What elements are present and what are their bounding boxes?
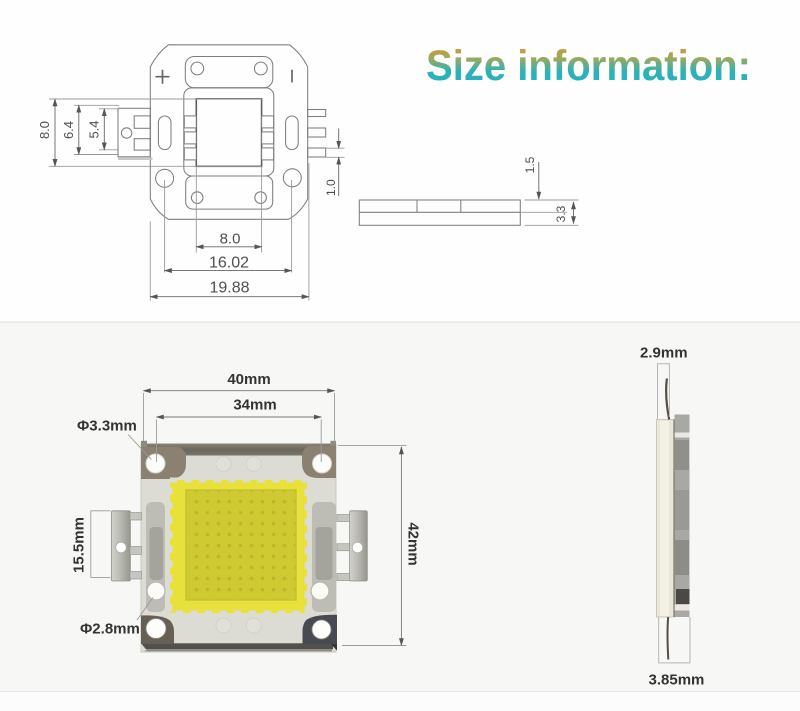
svg-text:1.5: 1.5 bbox=[523, 156, 537, 173]
svg-text:Φ2.8mm: Φ2.8mm bbox=[80, 621, 140, 638]
svg-text:6.4: 6.4 bbox=[61, 121, 76, 139]
svg-text:40mm: 40mm bbox=[227, 371, 270, 388]
svg-text:Size information:: Size information: bbox=[426, 42, 751, 90]
svg-text:5.4: 5.4 bbox=[86, 120, 101, 138]
svg-text:3.3: 3.3 bbox=[554, 205, 568, 222]
svg-text:34mm: 34mm bbox=[233, 397, 276, 414]
svg-text:3.85mm: 3.85mm bbox=[649, 672, 705, 689]
svg-text:15.5mm: 15.5mm bbox=[70, 517, 87, 573]
svg-text:42mm: 42mm bbox=[405, 522, 422, 565]
svg-text:Φ3.3mm: Φ3.3mm bbox=[77, 418, 137, 435]
svg-text:16.02: 16.02 bbox=[209, 255, 249, 272]
svg-text:8.0: 8.0 bbox=[37, 121, 52, 139]
svg-text:19.88: 19.88 bbox=[209, 280, 249, 297]
svg-text:1.0: 1.0 bbox=[324, 179, 338, 196]
svg-text:2.9mm: 2.9mm bbox=[640, 345, 688, 362]
svg-text:8.0: 8.0 bbox=[220, 231, 241, 248]
